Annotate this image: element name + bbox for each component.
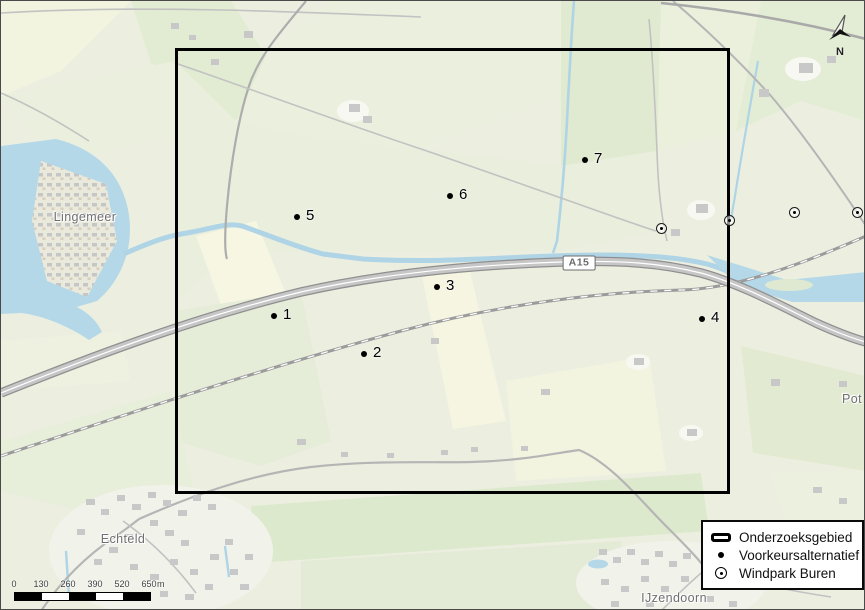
scale-segment bbox=[96, 593, 123, 600]
legend-item: Voorkeursalternatief bbox=[711, 546, 854, 564]
windpark-symbol-dot bbox=[660, 227, 663, 230]
place-label: Lingemeer bbox=[54, 210, 117, 224]
scale-segment bbox=[123, 593, 150, 600]
scale-bar-track bbox=[14, 592, 151, 601]
a15-road-shield: A15 bbox=[563, 256, 596, 271]
north-arrow-icon bbox=[823, 13, 857, 45]
scale-segment bbox=[69, 593, 96, 600]
scale-tick: 390 bbox=[83, 579, 107, 589]
legend-item: Onderzoeksgebied bbox=[711, 528, 854, 546]
scale-tick: 260 bbox=[56, 579, 80, 589]
preferred-point-dot bbox=[699, 316, 705, 322]
legend-label: Windpark Buren bbox=[739, 566, 836, 581]
preferred-point-dot bbox=[294, 214, 300, 220]
windpark-symbol-dot bbox=[728, 219, 731, 222]
windpark-symbol bbox=[724, 215, 735, 226]
preferred-point-label: 4 bbox=[711, 308, 719, 328]
north-arrow: N bbox=[823, 13, 857, 59]
preferred-point-dot bbox=[582, 157, 588, 163]
preferred-point-dot bbox=[271, 313, 277, 319]
scale-unit: m bbox=[157, 579, 169, 589]
scale-tick: 130 bbox=[29, 579, 53, 589]
scale-segment bbox=[42, 593, 69, 600]
windpark-symbol bbox=[656, 223, 667, 234]
dot-icon bbox=[718, 552, 724, 558]
legend-rows: OnderzoeksgebiedVoorkeursalternatiefWind… bbox=[711, 528, 854, 582]
preferred-point-label: 7 bbox=[594, 149, 602, 169]
preferred-point-label: 3 bbox=[446, 276, 454, 296]
preferred-point-label: 5 bbox=[306, 206, 314, 226]
map-figure: 1234567LingemeerEchteldIJzendoornPot A15… bbox=[0, 0, 865, 610]
study-area-outline bbox=[175, 48, 730, 494]
windpark-symbol-dot bbox=[793, 211, 796, 214]
preferred-point-dot bbox=[434, 284, 440, 290]
legend-label: Voorkeursalternatief bbox=[739, 548, 859, 563]
windpark-symbol-dot bbox=[856, 211, 859, 214]
place-label: Echteld bbox=[101, 532, 146, 546]
place-label: IJzendoorn bbox=[641, 591, 707, 605]
scale-tick: 520 bbox=[110, 579, 134, 589]
legend-item: Windpark Buren bbox=[711, 564, 854, 582]
legend-label: Onderzoeksgebied bbox=[739, 530, 852, 545]
preferred-point-dot bbox=[447, 193, 453, 199]
preferred-point-dot bbox=[361, 351, 367, 357]
circled-dot-icon bbox=[715, 567, 727, 579]
scale-tick: 0 bbox=[2, 579, 26, 589]
preferred-point-label: 6 bbox=[459, 185, 467, 205]
windpark-symbol bbox=[852, 207, 863, 218]
windpark-symbol bbox=[789, 207, 800, 218]
north-arrow-label: N bbox=[823, 46, 857, 58]
study-area-icon bbox=[711, 533, 731, 542]
preferred-point-label: 1 bbox=[283, 305, 291, 325]
scale-bar: 0130260390520650m bbox=[1, 579, 196, 609]
legend: OnderzoeksgebiedVoorkeursalternatiefWind… bbox=[701, 520, 864, 590]
scale-segment bbox=[15, 593, 42, 600]
preferred-point-label: 2 bbox=[373, 343, 381, 363]
place-label: Pot bbox=[842, 392, 862, 406]
